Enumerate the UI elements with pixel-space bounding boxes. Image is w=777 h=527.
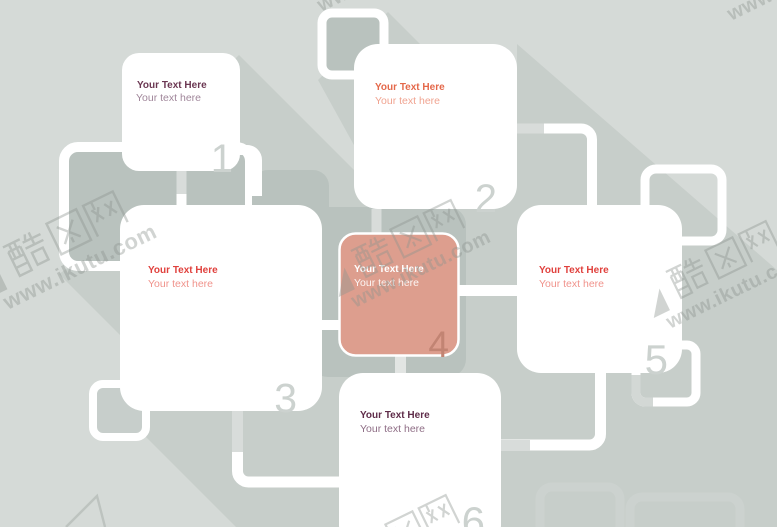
svg-text:Your text here: Your text here bbox=[539, 278, 604, 290]
svg-text:5: 5 bbox=[645, 336, 668, 383]
svg-text:6: 6 bbox=[462, 498, 485, 527]
svg-text:Your text here: Your text here bbox=[148, 278, 213, 290]
svg-text:3: 3 bbox=[274, 375, 297, 421]
svg-text:Your Text Here: Your Text Here bbox=[539, 265, 609, 276]
svg-text:Your text here: Your text here bbox=[136, 92, 201, 104]
svg-text:Your text here: Your text here bbox=[375, 95, 440, 107]
svg-text:4: 4 bbox=[428, 324, 449, 365]
svg-text:Your Text Here: Your Text Here bbox=[148, 265, 218, 276]
svg-text:2: 2 bbox=[475, 177, 497, 221]
svg-text:Your Text Here: Your Text Here bbox=[375, 82, 445, 93]
svg-text:Your text here: Your text here bbox=[360, 423, 425, 435]
svg-text:Your Text Here: Your Text Here bbox=[360, 410, 430, 421]
svg-text:Your Text Here: Your Text Here bbox=[137, 80, 207, 91]
svg-text:1: 1 bbox=[211, 137, 233, 181]
